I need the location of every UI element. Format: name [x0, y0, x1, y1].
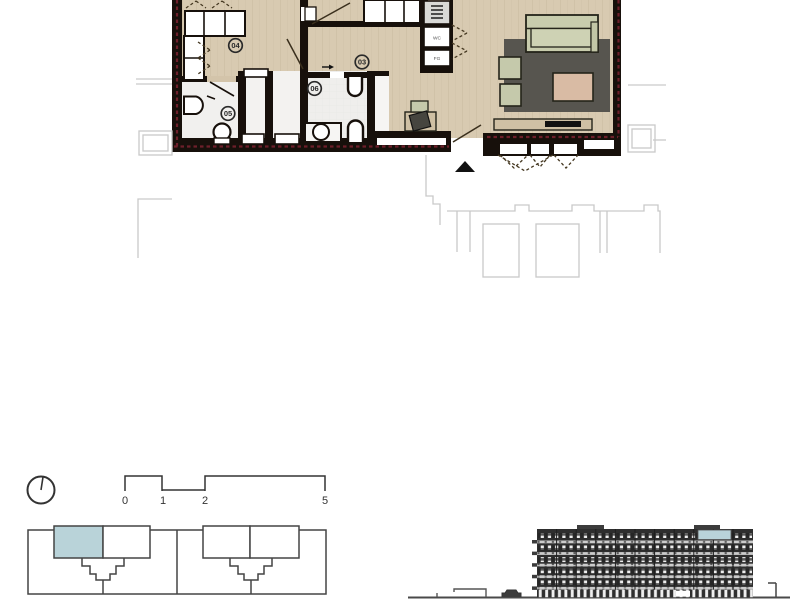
svg-text:5: 5 — [322, 495, 328, 507]
svg-text:06: 06 — [310, 84, 318, 93]
svg-text:2: 2 — [202, 495, 208, 507]
svg-text:1: 1 — [160, 495, 166, 507]
svg-text:05: 05 — [224, 109, 232, 118]
svg-text:0: 0 — [122, 495, 128, 507]
svg-text:03: 03 — [358, 58, 366, 67]
svg-text:FG: FG — [434, 56, 441, 62]
svg-text:04: 04 — [231, 41, 240, 50]
svg-text:WC: WC — [433, 36, 442, 42]
